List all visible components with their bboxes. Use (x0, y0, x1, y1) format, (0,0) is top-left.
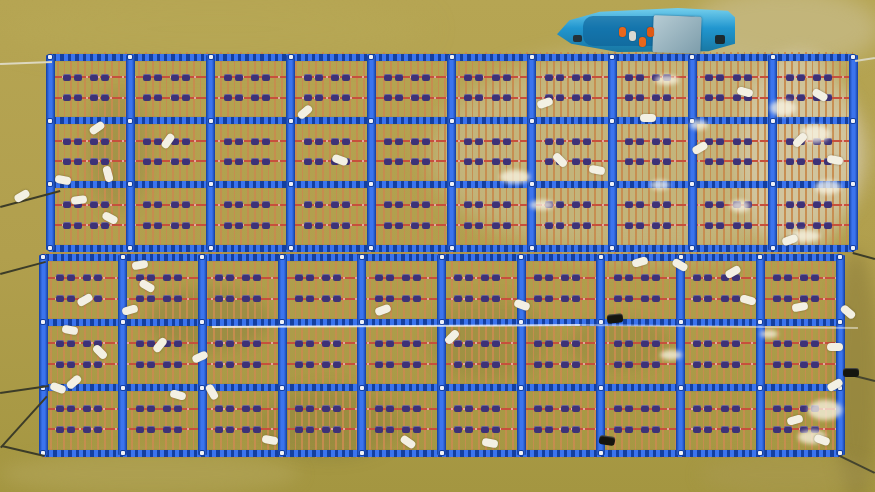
frame-post (756, 255, 765, 455)
oyster-pod (625, 222, 633, 229)
oyster-pod (475, 222, 483, 229)
oyster-cluster (800, 361, 819, 368)
bow-fitting (573, 35, 582, 42)
oyster-pod (411, 158, 419, 165)
oyster-pod (242, 274, 250, 281)
oyster-cluster (733, 74, 752, 81)
oyster-cluster (251, 222, 270, 229)
oyster-cluster (625, 74, 644, 81)
oyster-pod (395, 94, 403, 101)
oyster-pod (402, 274, 410, 281)
oyster-pod (465, 295, 473, 302)
oyster-cluster (56, 405, 75, 412)
oyster-pod (652, 361, 660, 368)
oyster-pod (465, 405, 473, 412)
oyster-cluster (411, 201, 430, 208)
oyster-pod (322, 426, 330, 433)
oyster-pod (625, 94, 633, 101)
oyster-pod (721, 426, 729, 433)
oyster-pod (94, 274, 102, 281)
oyster-cluster (304, 94, 323, 101)
oyster-pod (413, 361, 421, 368)
oyster-cluster (481, 426, 500, 433)
oyster-cluster (224, 94, 243, 101)
joint-dot (610, 119, 614, 123)
oyster-cluster (143, 138, 162, 145)
oyster-pod (101, 138, 109, 145)
crew-person (639, 37, 646, 47)
oyster-pod (171, 158, 179, 165)
oyster-cluster (63, 138, 82, 145)
oyster-pod (163, 426, 171, 433)
joint-dot (599, 386, 603, 390)
oyster-cluster (492, 94, 511, 101)
oyster-pod (465, 361, 473, 368)
joint-dot (679, 255, 683, 259)
oyster-cluster (384, 201, 403, 208)
oyster-pod (545, 426, 553, 433)
frame-post (118, 255, 127, 455)
oyster-pod (306, 274, 314, 281)
oyster-cluster (90, 222, 109, 229)
oyster-pod (411, 74, 419, 81)
oyster-pod (481, 274, 489, 281)
aerial-photo-oyster-farm: Aerial drone view of two large floating … (0, 0, 875, 492)
oyster-pod (773, 274, 781, 281)
oyster-pod (83, 426, 91, 433)
oyster-pod (545, 340, 553, 347)
oyster-pod (811, 340, 819, 347)
oyster-cluster (90, 158, 109, 165)
oyster-pod (342, 94, 350, 101)
oyster-pod (465, 426, 473, 433)
oyster-cluster (242, 340, 261, 347)
oyster-pod (716, 201, 724, 208)
oyster-cluster (163, 405, 182, 412)
oyster-pod (242, 361, 250, 368)
joint-dot (369, 55, 373, 59)
oyster-cluster (721, 405, 740, 412)
joint-dot (48, 246, 52, 250)
oyster-cluster (143, 74, 162, 81)
oyster-pod (800, 340, 808, 347)
oyster-cluster (242, 295, 261, 302)
oyster-cluster (800, 274, 819, 281)
oyster-pod (786, 74, 794, 81)
oyster-cluster (625, 158, 644, 165)
oyster-pod (322, 295, 330, 302)
oyster-pod (251, 74, 259, 81)
oyster-cluster (813, 74, 832, 81)
oyster-pod (721, 361, 729, 368)
oyster-pod (545, 158, 553, 165)
oyster-pod (402, 361, 410, 368)
oyster-cluster (384, 74, 403, 81)
joint-dot (128, 182, 132, 186)
oyster-cluster (572, 94, 591, 101)
oyster-pod (226, 340, 234, 347)
oyster-cluster (304, 222, 323, 229)
oyster-pod (693, 295, 701, 302)
oyster-pod (136, 340, 144, 347)
oyster-pod (556, 94, 564, 101)
oyster-cluster (331, 94, 350, 101)
joint-dot (209, 182, 213, 186)
joint-dot (690, 55, 694, 59)
oyster-pod (641, 274, 649, 281)
oyster-pod (492, 361, 500, 368)
foam-debris (650, 180, 670, 190)
oyster-pod (215, 361, 223, 368)
foam-debris (530, 200, 554, 210)
frame-post (278, 255, 287, 455)
oyster-pod (800, 361, 808, 368)
oyster-pod (545, 295, 553, 302)
oyster-cluster (773, 361, 792, 368)
frame-post (46, 55, 55, 250)
oyster-pod (572, 274, 580, 281)
joint-dot (851, 246, 855, 250)
oyster-pod (534, 340, 542, 347)
oyster-pod (413, 274, 421, 281)
oyster-pod (503, 94, 511, 101)
oyster-cluster (693, 295, 712, 302)
oyster-pod (136, 361, 144, 368)
oyster-pod (251, 138, 259, 145)
oyster-pod (375, 361, 383, 368)
oyster-pod (306, 405, 314, 412)
oyster-pod (63, 94, 71, 101)
work-boat (557, 7, 735, 54)
oyster-cluster (572, 222, 591, 229)
oyster-pod (721, 340, 729, 347)
oyster-cluster (641, 295, 660, 302)
oyster-pod (693, 361, 701, 368)
anchor-rope (0, 61, 52, 65)
oyster-pod (733, 94, 741, 101)
oyster-cluster (322, 426, 341, 433)
oyster-pod (625, 361, 633, 368)
oyster-pod (475, 94, 483, 101)
oyster-pod (63, 138, 71, 145)
joint-dot (758, 386, 762, 390)
oyster-pod (384, 94, 392, 101)
oyster-pod (395, 158, 403, 165)
oyster-pod (315, 201, 323, 208)
oyster-pod (94, 426, 102, 433)
oyster-pod (652, 405, 660, 412)
joint-dot (519, 386, 523, 390)
oyster-pod (174, 426, 182, 433)
oyster-cluster (572, 201, 591, 208)
oyster-pod (481, 340, 489, 347)
oyster-pod (402, 426, 410, 433)
oyster-pod (732, 340, 740, 347)
oyster-pod (315, 158, 323, 165)
oyster-pod (716, 94, 724, 101)
oyster-pod (773, 405, 781, 412)
oyster-pod (386, 295, 394, 302)
oyster-cluster (411, 74, 430, 81)
oyster-pod (705, 94, 713, 101)
foam-debris (500, 170, 530, 184)
oyster-cluster (813, 222, 832, 229)
oyster-raft (43, 257, 840, 453)
oyster-pod (797, 158, 805, 165)
oyster-pod (331, 74, 339, 81)
oyster-pod (733, 138, 741, 145)
oyster-cluster (136, 340, 155, 347)
oyster-pod (143, 74, 151, 81)
boat-canopy (652, 15, 701, 54)
oyster-pod (716, 222, 724, 229)
oyster-cluster (83, 361, 102, 368)
frame-post (437, 255, 446, 455)
oyster-pod (705, 158, 713, 165)
oyster-pod (454, 405, 462, 412)
oyster-cluster (163, 426, 182, 433)
oyster-pod (224, 94, 232, 101)
oyster-cluster (705, 158, 724, 165)
oyster-cluster (402, 361, 421, 368)
oyster-pod (253, 361, 261, 368)
oyster-pod (94, 295, 102, 302)
oyster-pod (732, 405, 740, 412)
oyster-pod (67, 295, 75, 302)
oyster-cluster (295, 340, 314, 347)
joint-dot (41, 255, 45, 259)
oyster-cluster (641, 274, 660, 281)
oyster-cluster (773, 426, 792, 433)
oyster-pod (262, 74, 270, 81)
oyster-cluster (215, 340, 234, 347)
joint-dot (128, 55, 132, 59)
oyster-pod (492, 158, 500, 165)
oyster-pod (705, 222, 713, 229)
oyster-pod (614, 340, 622, 347)
oyster-pod (572, 158, 580, 165)
joint-dot (599, 451, 603, 455)
joint-dot (530, 55, 534, 59)
oyster-cluster (614, 405, 633, 412)
joint-dot (289, 246, 293, 250)
oyster-cluster (242, 274, 261, 281)
oyster-pod (811, 274, 819, 281)
oyster-cluster (561, 295, 580, 302)
oyster-cluster (295, 426, 314, 433)
oyster-cluster (143, 94, 162, 101)
oyster-pod (561, 340, 569, 347)
oyster-pod (475, 201, 483, 208)
oyster-cluster (492, 74, 511, 81)
oyster-pod (413, 295, 421, 302)
oyster-pod (83, 361, 91, 368)
oyster-pod (331, 201, 339, 208)
oyster-cluster (56, 340, 75, 347)
joint-dot (128, 246, 132, 250)
oyster-pod (74, 138, 82, 145)
oyster-cluster (402, 340, 421, 347)
oyster-pod (226, 361, 234, 368)
oyster-pod (693, 426, 701, 433)
oyster-pod (641, 361, 649, 368)
joint-dot (838, 255, 842, 259)
oyster-pod (90, 201, 98, 208)
black-float (607, 313, 624, 323)
oyster-pod (331, 138, 339, 145)
oyster-cluster (721, 361, 740, 368)
oyster-pod (224, 138, 232, 145)
oyster-pod (306, 295, 314, 302)
oyster-pod (306, 361, 314, 368)
oyster-pod (625, 158, 633, 165)
oyster-cluster (411, 222, 430, 229)
oyster-pod (797, 201, 805, 208)
oyster-pod (63, 158, 71, 165)
oyster-pod (732, 295, 740, 302)
oyster-pod (224, 201, 232, 208)
oyster-pod (625, 274, 633, 281)
oyster-raft (50, 57, 853, 248)
foam-debris (815, 180, 841, 194)
frame-post (286, 55, 295, 250)
oyster-pod (744, 158, 752, 165)
oyster-cluster (652, 201, 671, 208)
oyster-cluster (614, 295, 633, 302)
oyster-pod (215, 295, 223, 302)
oyster-pod (583, 94, 591, 101)
oyster-pod (56, 274, 64, 281)
oyster-pod (545, 74, 553, 81)
oyster-pod (641, 426, 649, 433)
oyster-cluster (171, 222, 190, 229)
foam-buoy (640, 114, 656, 122)
oyster-pod (704, 426, 712, 433)
oyster-pod (251, 222, 259, 229)
oyster-pod (74, 74, 82, 81)
oyster-pod (652, 274, 660, 281)
oyster-pod (786, 158, 794, 165)
oyster-pod (704, 295, 712, 302)
oyster-cluster (561, 340, 580, 347)
oyster-cluster (545, 74, 564, 81)
oyster-cluster (295, 274, 314, 281)
oyster-pod (174, 295, 182, 302)
oyster-pod (375, 340, 383, 347)
oyster-pod (732, 426, 740, 433)
oyster-cluster (800, 340, 819, 347)
oyster-pod (652, 340, 660, 347)
oyster-pod (174, 405, 182, 412)
oyster-pod (561, 295, 569, 302)
joint-dot (369, 182, 373, 186)
oyster-pod (704, 361, 712, 368)
oyster-pod (572, 74, 580, 81)
oyster-pod (147, 405, 155, 412)
oyster-cluster (136, 426, 155, 433)
oyster-cluster (304, 201, 323, 208)
oyster-cluster (171, 158, 190, 165)
joint-dot (369, 119, 373, 123)
oyster-cluster (733, 158, 752, 165)
oyster-cluster (63, 74, 82, 81)
frame-post (849, 55, 858, 250)
oyster-cluster (136, 361, 155, 368)
oyster-cluster (641, 340, 660, 347)
oyster-pod (94, 405, 102, 412)
oyster-pod (652, 158, 660, 165)
oyster-pod (784, 426, 792, 433)
oyster-pod (253, 426, 261, 433)
oyster-cluster (215, 295, 234, 302)
oyster-cluster (572, 138, 591, 145)
oyster-cluster (705, 222, 724, 229)
oyster-cluster (215, 361, 234, 368)
crew-person (629, 31, 636, 41)
oyster-pod (386, 340, 394, 347)
oyster-pod (800, 274, 808, 281)
oyster-pod (413, 426, 421, 433)
oyster-pod (744, 138, 752, 145)
oyster-pod (503, 138, 511, 145)
oyster-pod (454, 361, 462, 368)
oyster-pod (534, 426, 542, 433)
oyster-cluster (454, 426, 473, 433)
oyster-pod (242, 426, 250, 433)
oyster-pod (342, 201, 350, 208)
oyster-pod (784, 405, 792, 412)
oyster-pod (242, 295, 250, 302)
frame-post (768, 55, 777, 250)
oyster-pod (625, 426, 633, 433)
oyster-cluster (464, 94, 483, 101)
oyster-cluster (251, 201, 270, 208)
oyster-cluster (251, 74, 270, 81)
oyster-pod (304, 158, 312, 165)
oyster-pod (235, 138, 243, 145)
oyster-cluster (402, 274, 421, 281)
oyster-pod (215, 426, 223, 433)
oyster-cluster (402, 405, 421, 412)
oyster-cluster (384, 94, 403, 101)
frame-post (527, 55, 536, 250)
oyster-pod (395, 222, 403, 229)
oyster-pod (174, 361, 182, 368)
oyster-cluster (464, 158, 483, 165)
oyster-pod (375, 274, 383, 281)
oyster-cluster (652, 158, 671, 165)
oyster-cluster (242, 426, 261, 433)
oyster-pod (242, 405, 250, 412)
oyster-pod (411, 222, 419, 229)
oyster-cluster (693, 405, 712, 412)
oyster-pod (652, 201, 660, 208)
oyster-pod (572, 222, 580, 229)
oyster-pod (464, 138, 472, 145)
oyster-cluster (561, 274, 580, 281)
oyster-cluster (163, 361, 182, 368)
oyster-cluster (322, 274, 341, 281)
oyster-pod (481, 405, 489, 412)
oyster-cluster (481, 405, 500, 412)
joint-dot (530, 246, 534, 250)
oyster-pod (422, 201, 430, 208)
oyster-pod (147, 426, 155, 433)
oyster-pod (136, 295, 144, 302)
oyster-cluster (534, 340, 553, 347)
oyster-cluster (224, 74, 243, 81)
oyster-pod (306, 340, 314, 347)
